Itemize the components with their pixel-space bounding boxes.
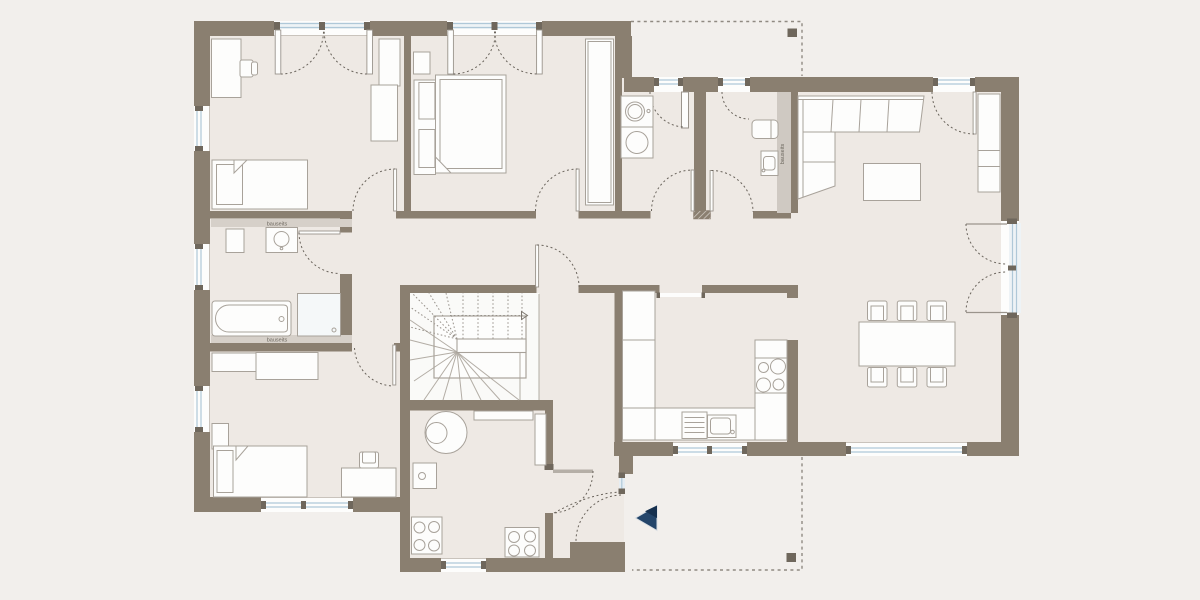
svg-text:bauseits: bauseits: [267, 338, 288, 344]
svg-text:bauseits: bauseits: [267, 222, 288, 228]
svg-text:bauseits: bauseits: [780, 144, 786, 165]
